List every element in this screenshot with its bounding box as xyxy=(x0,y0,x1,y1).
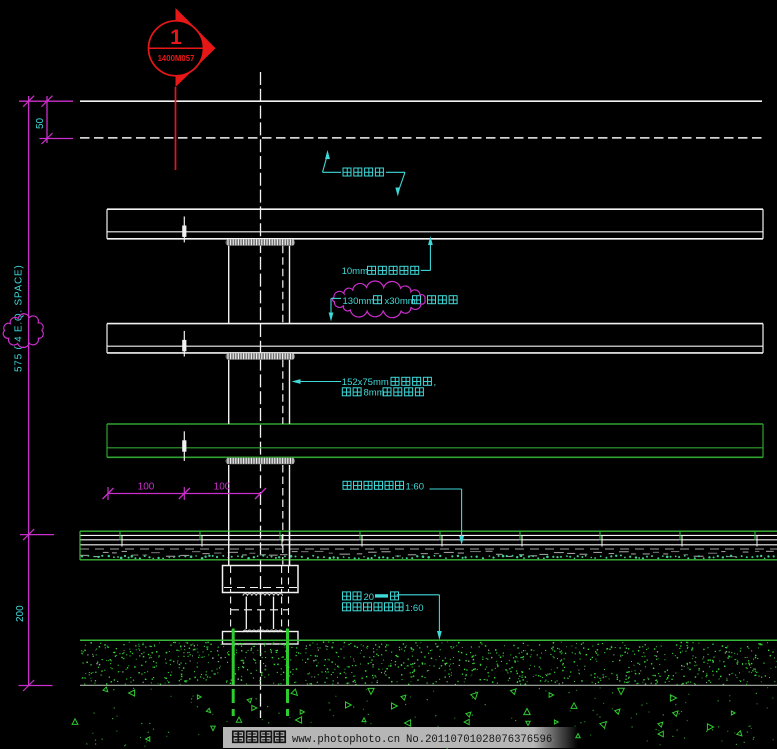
svg-text:100: 100 xyxy=(138,482,155,493)
svg-text:x30mm: x30mm xyxy=(385,296,416,307)
svg-text:1:60: 1:60 xyxy=(405,603,424,614)
svg-text:1:60: 1:60 xyxy=(406,482,425,493)
svg-text:100: 100 xyxy=(214,482,231,493)
svg-text:575 ( 4 E.Q. SPACE): 575 ( 4 E.Q. SPACE) xyxy=(14,265,25,372)
svg-text:10mm: 10mm xyxy=(342,266,368,277)
svg-text:1400M057: 1400M057 xyxy=(158,54,195,63)
svg-text:No.20110701028076376596: No.20110701028076376596 xyxy=(406,734,552,746)
svg-text:1: 1 xyxy=(170,26,182,49)
svg-text:130mm: 130mm xyxy=(343,296,375,307)
svg-text:8mm: 8mm xyxy=(364,388,385,399)
svg-text:152x75mm: 152x75mm xyxy=(342,377,389,388)
svg-text:200: 200 xyxy=(15,605,26,622)
svg-text:20: 20 xyxy=(364,592,375,603)
svg-text:,: , xyxy=(434,377,437,388)
svg-text:www.photophoto.cn: www.photophoto.cn xyxy=(292,734,400,746)
svg-text:50: 50 xyxy=(35,117,46,129)
